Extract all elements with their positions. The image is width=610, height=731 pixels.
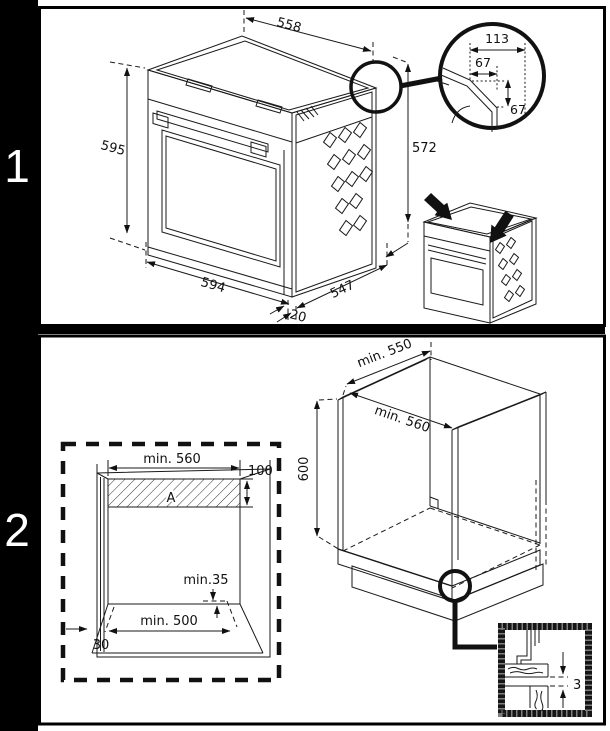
cross-section-drawing [505,630,548,711]
insert-arrow-icon [424,193,452,220]
gap-detail-box: 3 [502,627,589,714]
dim-label-67-vertical: 67 [510,102,526,117]
dim-label-595: 595 [99,138,127,159]
dim-label-3: 3 [573,678,581,693]
dim-label-min35: min.35 [183,573,228,588]
oven-installation-sheet: 1 2 [0,0,610,731]
dim-label-30: 30 [93,638,110,653]
panel-2-border [40,336,605,724]
dim-label-min500: min. 500 [140,614,198,629]
small-oven-vent-holes [496,238,525,302]
panel-2-cabinet-cutout: A min. 560 100 min.35 min. 500 30 [63,336,589,713]
dim-label-min560-cabinet: min. 560 [372,403,431,436]
dim-front-height: 595 [99,62,146,268]
cutout-front-view: A min. 560 100 min.35 min. 500 30 [63,444,279,680]
step-1-number: 1 [4,140,30,192]
dim-label-20: 20 [288,307,308,326]
corner-zoom-detail: 113 67 67 [351,24,544,132]
panel-1-oven-dimensions: 595 594 20 547 558 [99,10,544,326]
cabinet-isometric: 600 min. 550 min. 560 [297,336,546,647]
dim-label-572: 572 [412,141,437,156]
installation-diagram: 1 2 [0,0,610,731]
oven-insertion-view [424,193,536,323]
zoom-connector [400,78,442,86]
dim-label-100: 100 [248,464,273,479]
dim-label-67-horizontal: 67 [475,55,491,70]
dim-front-width: 594 [147,262,289,304]
dim-top-depth: 558 [244,10,373,62]
detail-connector [455,601,497,647]
step-sidebar [0,0,38,731]
dim-label-558: 558 [275,15,303,36]
dim-label-min560-cutout: min. 560 [143,452,201,467]
oven-isometric [148,36,376,297]
dim-label-min550: min. 550 [355,336,414,371]
panel-1-border [40,8,605,326]
dim-body-height: 572 [386,57,437,257]
detail-box-border [502,627,589,714]
panel-divider [38,326,605,335]
vent-area-label: A [167,491,176,506]
dim-label-594: 594 [199,275,227,296]
dim-label-113: 113 [485,31,509,46]
side-vent-holes [324,123,373,236]
dim-label-600: 600 [297,457,312,482]
step-2-number: 2 [4,504,30,556]
